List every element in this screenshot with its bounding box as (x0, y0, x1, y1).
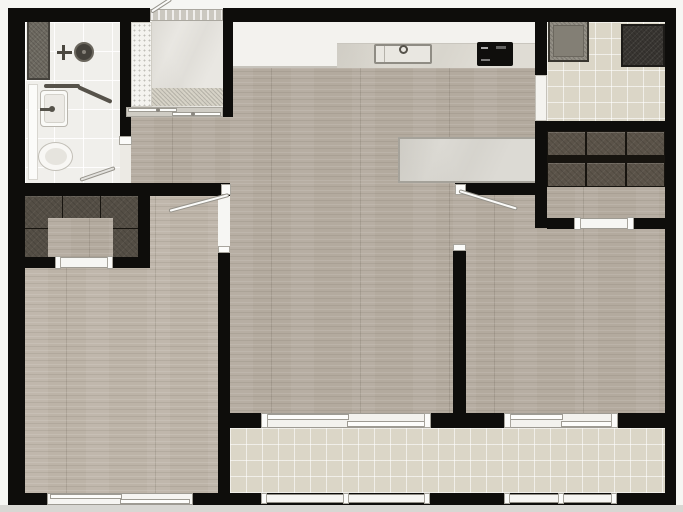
wall-bedroom-left-divider (218, 247, 230, 428)
wall-left (8, 8, 25, 505)
wall-balcony-left (218, 428, 230, 493)
closet-seam-4 (113, 228, 138, 229)
wall-closet-right (138, 196, 150, 268)
closet-seam-2 (100, 196, 101, 218)
cooktop-mark-2 (496, 46, 506, 49)
shower-side-panel (28, 84, 38, 180)
railing-right-post-c (611, 493, 617, 504)
foyer-slider-knob-1 (156, 108, 160, 112)
floor-plan (0, 0, 683, 512)
shower-valve-bar-v (62, 45, 65, 60)
wall-right (665, 8, 676, 505)
balcony-floor (230, 428, 665, 493)
closet-seam-1 (62, 196, 63, 218)
wall-bedroom-right-divider (453, 245, 466, 428)
wall-closet-bottom-1 (25, 257, 55, 268)
living-floor-main (230, 183, 453, 413)
wall-closet-bottom-2 (113, 257, 138, 268)
wall-balcony-top-3 (617, 413, 676, 428)
wardrobe-unit (548, 163, 585, 186)
wall-bathroom-right (120, 8, 131, 140)
wardrobe-unit (627, 132, 664, 155)
cooktop-mark-3 (481, 59, 490, 61)
bedroom-slider-panel-2 (561, 421, 614, 427)
bathroom-door-threshold (120, 143, 131, 183)
cooktop-mark-1 (481, 47, 488, 49)
wall-wardrobe-bottom-1 (547, 218, 575, 229)
washing-machine-inner (553, 25, 584, 57)
dining-table (398, 137, 537, 183)
shoe-cabinet (131, 22, 152, 107)
toilet-bowl (45, 148, 67, 165)
living-slider-panel-2 (347, 421, 426, 427)
wardrobe-row-upper (547, 131, 665, 156)
wall-balcony-top-1 (230, 413, 262, 428)
wardrobe-unit (627, 163, 664, 186)
wardrobe-slider-opening (575, 218, 633, 229)
bathroom-storage-ledge (27, 20, 50, 80)
railing-left-post-b (343, 493, 349, 504)
wall-right-vertical (535, 22, 547, 228)
wall-top-right (223, 8, 676, 22)
shower-glass-partition (44, 84, 80, 88)
wall-wardrobe-bottom-2 (633, 218, 665, 229)
wall-balcony-top-2 (430, 413, 505, 428)
foyer-slider-panel-2 (172, 112, 221, 116)
wall-foyer-kitchen (223, 8, 233, 117)
railing-left-post-a (261, 493, 267, 504)
laundry-opening (535, 75, 547, 121)
bedroom-slider-panel-1 (508, 414, 563, 420)
closet-floor-niche (48, 218, 113, 257)
outside-ground-strip (0, 505, 683, 512)
railing-left-post-c (424, 493, 430, 504)
wardrobe-unit (587, 163, 624, 186)
wall-cap-bedroom-left (218, 246, 230, 253)
living-slider-panel-1 (266, 414, 349, 420)
foyer-slider-knob-2 (191, 112, 195, 116)
dark-appliance (621, 24, 665, 67)
wardrobe-slider-post-right (627, 217, 634, 230)
bedroom-left-window-pane-1 (50, 494, 122, 499)
wardrobe-unit (548, 132, 585, 155)
closet-slider-post-right (107, 256, 113, 269)
living-slider-post-left (261, 413, 268, 428)
closet-slider-post-left (55, 256, 61, 269)
bedroom-left-window-pane-2 (120, 499, 190, 504)
wardrobe-unit (587, 132, 624, 155)
wall-horizontal-left (8, 183, 230, 196)
kitchen-faucet-icon (399, 45, 408, 54)
closet-slider-opening (55, 257, 113, 268)
wall-laundry-wardrobe (547, 121, 665, 131)
basin-faucet-dot (49, 106, 55, 112)
induction-cooktop (477, 42, 513, 66)
bedroom-slider-post-left (504, 413, 511, 428)
wardrobe-slider-post-left (574, 217, 581, 230)
foyer-threshold (150, 9, 223, 21)
kitchen-sink-divider (384, 46, 385, 62)
foyer-marble-mat (152, 88, 223, 106)
bedroom-slider-post-right (611, 413, 618, 428)
wardrobe-row-lower (547, 162, 665, 187)
closet-seam-3 (25, 228, 48, 229)
railing-right-post-b (558, 493, 564, 504)
railing-right-post-a (504, 493, 510, 504)
shower-head-center (82, 50, 86, 54)
wall-cap-bedroom-right (453, 244, 466, 251)
foyer-slider-panel-1 (128, 108, 177, 112)
living-slider-post-right (424, 413, 431, 428)
wall-cap-bathroom (119, 136, 132, 145)
hallway-floor (131, 117, 230, 183)
